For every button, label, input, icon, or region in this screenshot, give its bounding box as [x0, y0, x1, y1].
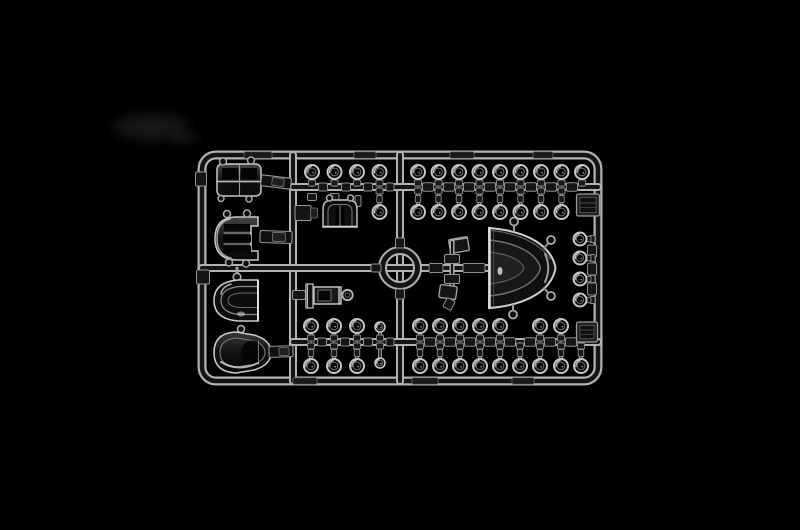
detail-shape [0, 0, 800, 530]
vignette [0, 0, 800, 530]
sprue-photo-canvas [0, 0, 800, 530]
photo-stage [0, 0, 800, 530]
product-photo-clear-sprue [0, 0, 800, 530]
